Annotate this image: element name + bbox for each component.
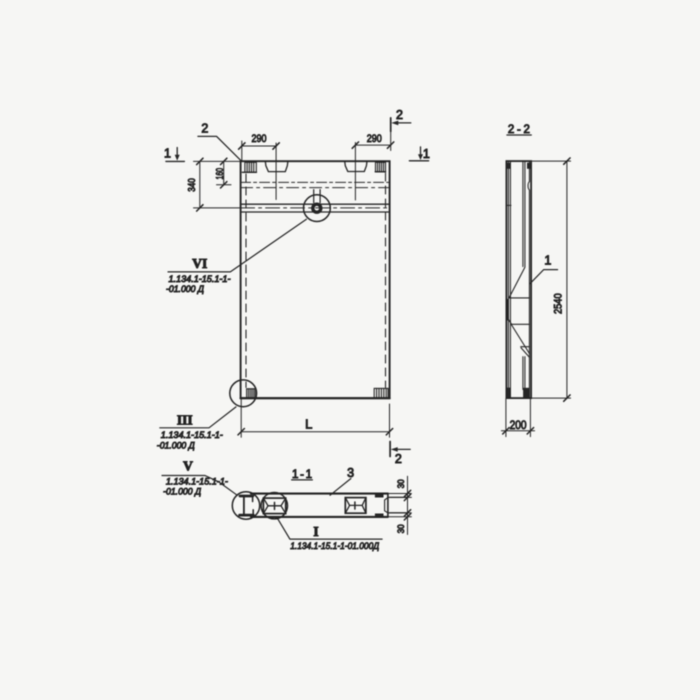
svg-text:160: 160 xyxy=(215,168,226,180)
svg-text:340: 340 xyxy=(187,178,198,192)
svg-text:-01.000 Д: -01.000 Д xyxy=(157,441,195,451)
svg-text:290: 290 xyxy=(367,133,382,145)
svg-text:III: III xyxy=(177,412,193,427)
svg-text:1.134.1-15.1-1-: 1.134.1-15.1-1- xyxy=(166,477,228,487)
svg-text:1: 1 xyxy=(544,253,551,267)
svg-text:2: 2 xyxy=(201,122,208,136)
svg-text:1: 1 xyxy=(423,147,430,161)
svg-text:I: I xyxy=(313,524,318,539)
svg-text:V: V xyxy=(183,459,193,474)
svg-text:2: 2 xyxy=(396,108,403,122)
svg-text:-01.000 Д: -01.000 Д xyxy=(166,284,204,294)
svg-text:1.134.1-15.1-1-01.000Д: 1.134.1-15.1-1-01.000Д xyxy=(290,541,379,552)
svg-text:200: 200 xyxy=(510,420,527,432)
svg-text:VI: VI xyxy=(192,256,207,271)
svg-text:1.134.1-15.1-1-: 1.134.1-15.1-1- xyxy=(169,274,231,284)
svg-text:30: 30 xyxy=(396,524,407,533)
svg-text:1-1: 1-1 xyxy=(292,469,312,481)
svg-text:3: 3 xyxy=(347,466,354,480)
svg-text:2: 2 xyxy=(395,452,402,466)
svg-text:2-2: 2-2 xyxy=(508,124,530,136)
svg-text:290: 290 xyxy=(252,133,267,145)
svg-text:L: L xyxy=(305,417,312,432)
svg-text:1.134.1-15.1-1-: 1.134.1-15.1-1- xyxy=(161,430,223,440)
svg-text:-01.000 Д: -01.000 Д xyxy=(163,487,201,497)
svg-text:1: 1 xyxy=(164,147,171,161)
svg-text:30: 30 xyxy=(396,479,407,488)
svg-text:2540: 2540 xyxy=(552,293,564,314)
